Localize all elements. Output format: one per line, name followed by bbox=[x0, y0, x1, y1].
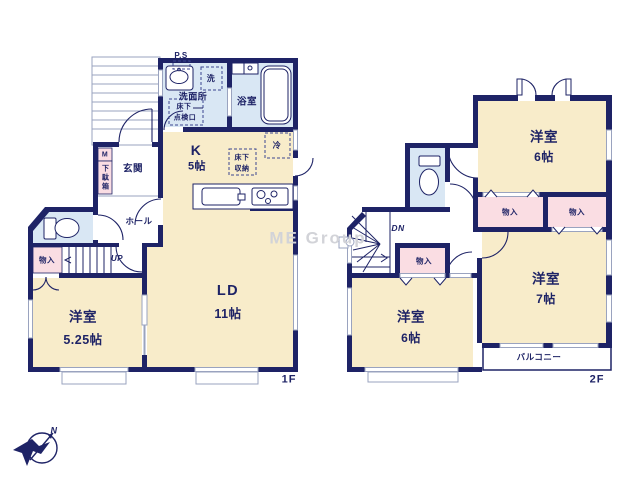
room-right-label: 洋室 bbox=[532, 272, 560, 286]
living-label: LD bbox=[217, 284, 239, 299]
room-west-7 bbox=[482, 232, 606, 343]
kitchen-counter bbox=[193, 184, 293, 209]
balcony-label: バルコニー bbox=[517, 353, 562, 362]
compass-icon bbox=[13, 433, 57, 466]
bathroom-label: 浴室 bbox=[237, 97, 257, 107]
watermark: ME Group bbox=[269, 230, 366, 247]
room-right-size-label: 7帖 bbox=[536, 293, 556, 305]
room-left-label: 洋室 bbox=[397, 310, 425, 324]
shutter-box-2f bbox=[368, 372, 458, 382]
closet-1f-label: 物入 bbox=[39, 256, 55, 264]
living-size-label: 11帖 bbox=[214, 308, 241, 321]
f2-plan bbox=[339, 79, 612, 382]
washstand-icon bbox=[166, 66, 193, 90]
sink-icon bbox=[202, 188, 240, 205]
ps-label: P.S bbox=[174, 52, 187, 60]
room-left-size-label: 6帖 bbox=[401, 332, 421, 344]
room-west-6-top bbox=[478, 101, 606, 192]
room-ldk bbox=[147, 132, 293, 367]
shutter-boxes-1f bbox=[62, 372, 258, 384]
fridge-label: 冷 bbox=[273, 142, 282, 150]
underfloor-label-1: 床下 bbox=[235, 155, 250, 162]
room-top-size-label: 6帖 bbox=[534, 151, 554, 163]
hatch-label-1: 床下 bbox=[177, 104, 192, 111]
closet-b-label: 物入 bbox=[569, 208, 585, 216]
west-room-size-label: 5.25帖 bbox=[63, 334, 102, 347]
toilet-icon-1f bbox=[44, 218, 79, 239]
shoe-cabinet-label: 下駄箱 bbox=[102, 165, 109, 192]
floorplan-canvas: P.S 洗 洗面所 床下 点検口 浴室 M 下駄箱 玄関 ホール K 5帖 冷 … bbox=[0, 0, 640, 480]
hall-label: ホール bbox=[125, 217, 152, 226]
meter-label: M bbox=[102, 152, 108, 159]
closet-a-label: 物入 bbox=[502, 208, 518, 216]
stove-icon bbox=[252, 188, 288, 205]
approach-steps bbox=[92, 57, 160, 145]
underfloor-label-2: 収納 bbox=[235, 166, 250, 173]
compass-north-label: N bbox=[51, 427, 58, 436]
washroom-label: 洗面所 bbox=[179, 93, 208, 102]
entrance-label: 玄関 bbox=[123, 164, 143, 174]
closet-c-label: 物入 bbox=[416, 257, 432, 265]
faucet-icon bbox=[238, 194, 245, 200]
room-top-label: 洋室 bbox=[530, 130, 558, 144]
west-room-label: 洋室 bbox=[69, 310, 97, 324]
kitchen-size-label: 5帖 bbox=[188, 162, 206, 173]
up-label: UP bbox=[111, 255, 123, 263]
kitchen-label: K bbox=[191, 143, 202, 157]
floor-2f-label: 2F bbox=[590, 375, 605, 386]
floor-1f-label: 1F bbox=[282, 375, 297, 386]
hatch-label-2: 点検口 bbox=[174, 115, 197, 122]
toilet-icon-2f bbox=[419, 156, 440, 195]
laundry-label: 洗 bbox=[207, 75, 216, 83]
dn-label: DN bbox=[391, 224, 404, 233]
roof-door-panels bbox=[517, 79, 571, 95]
stairs-up bbox=[65, 247, 111, 273]
